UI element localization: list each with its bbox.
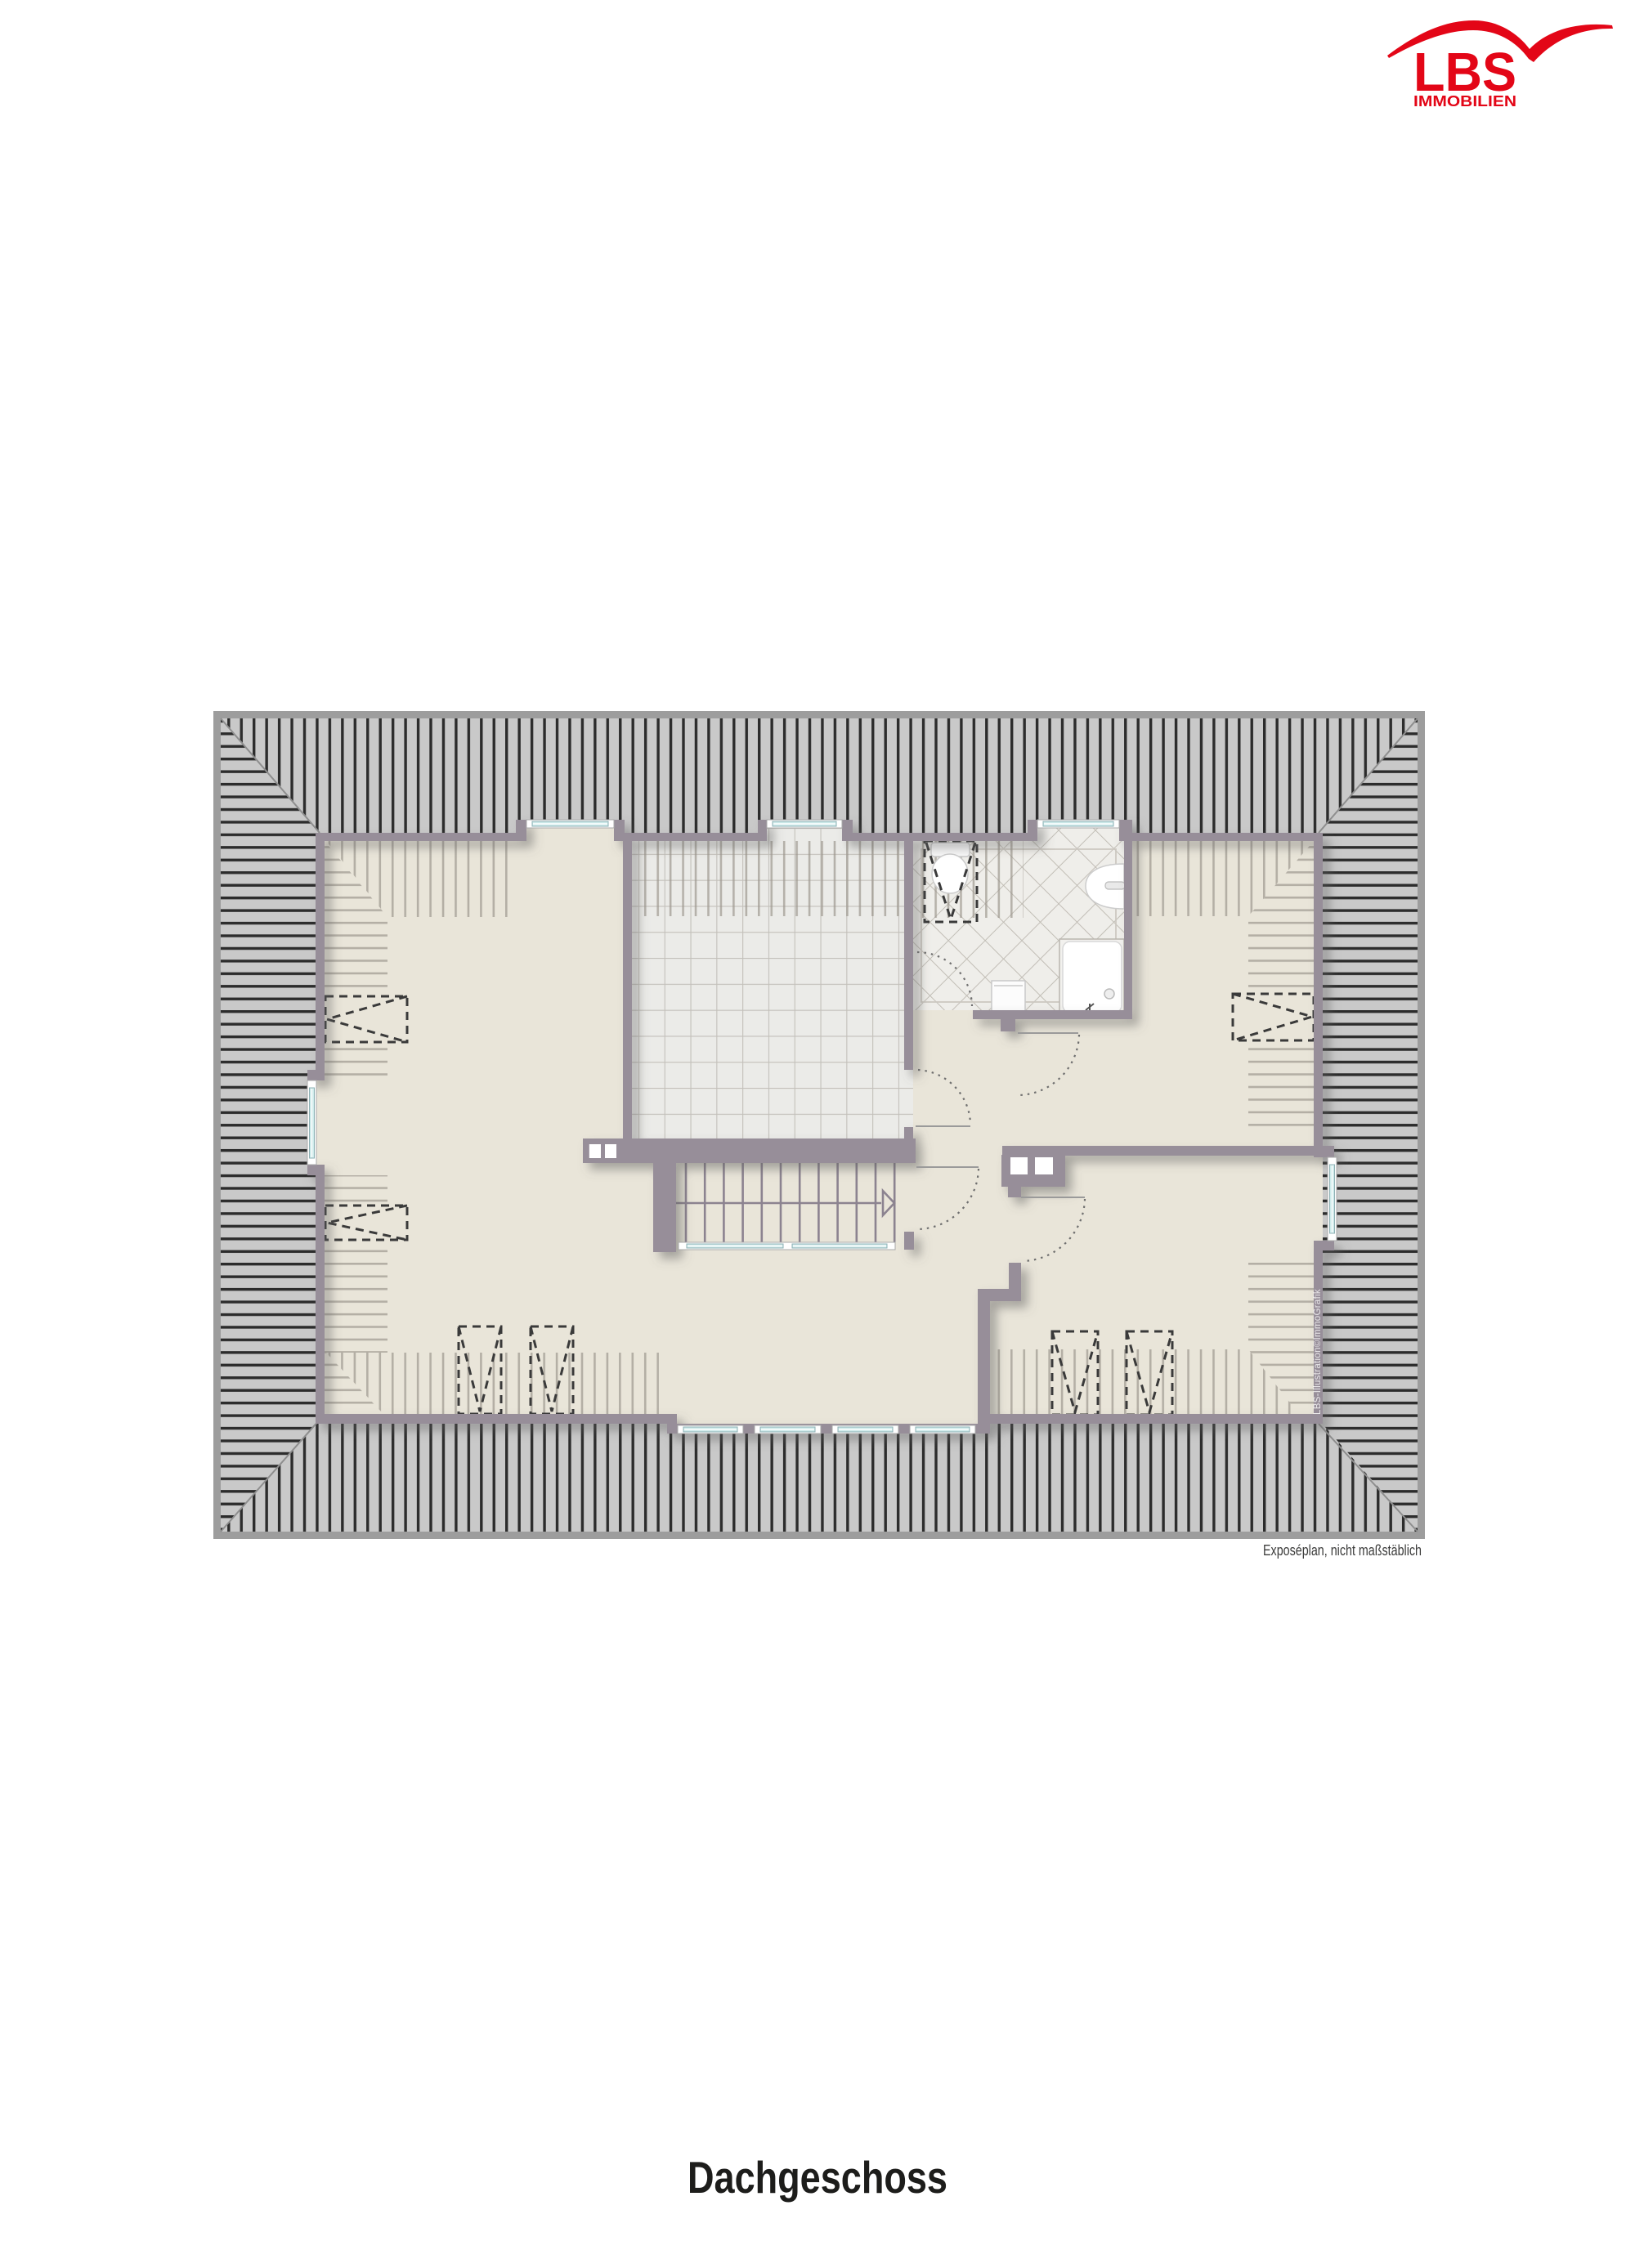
svg-text:LBS-Illustration©ImmoGrafik: LBS-Illustration©ImmoGrafik	[1313, 1289, 1323, 1415]
svg-text:Exposéplan, nicht maßstäblich: Exposéplan, nicht maßstäblich	[1263, 1541, 1422, 1559]
svg-text:IMMOBILIEN: IMMOBILIEN	[1413, 93, 1516, 110]
svg-text:Dachgeschoss: Dachgeschoss	[688, 2152, 947, 2203]
